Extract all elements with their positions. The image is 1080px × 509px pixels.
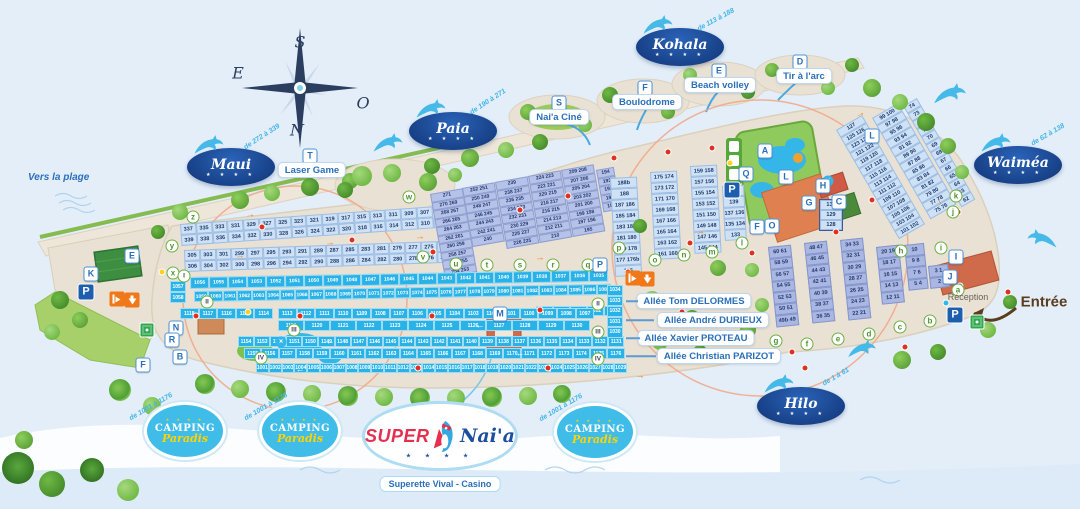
pitch-1048: 1048 xyxy=(342,274,361,286)
pitch-338: 338 xyxy=(197,233,214,245)
emergency-exit-icon xyxy=(110,292,125,307)
tree xyxy=(845,58,859,72)
pitch-1077: 1077 xyxy=(453,286,468,297)
pitch-1154: 1154 xyxy=(238,336,254,347)
pitch-1030: 1030 xyxy=(607,327,623,338)
tree xyxy=(419,173,437,191)
hydrant-dot xyxy=(687,240,694,247)
tree xyxy=(863,79,881,97)
pitch-1125: 1125 xyxy=(434,320,460,331)
tree xyxy=(231,380,249,398)
road-marker-r: r xyxy=(547,259,560,272)
pitch-block-mh-b3: 1119112011211122112311241125112611271128… xyxy=(278,320,590,331)
pitch-1134: 1134 xyxy=(560,336,576,347)
tree xyxy=(755,298,769,312)
pitch-281: 281 xyxy=(373,243,389,255)
super-naia-word1: SUPER xyxy=(365,426,430,447)
parking-icon: P xyxy=(724,182,741,199)
tree xyxy=(710,260,726,276)
pitch-332: 332 xyxy=(244,229,261,241)
pitch-1162: 1162 xyxy=(365,348,382,359)
pitch-1078: 1078 xyxy=(467,286,482,297)
pitch-1113: 1113 xyxy=(278,308,297,319)
pitch-1047: 1047 xyxy=(361,274,380,286)
facility-badge-M: M xyxy=(493,307,508,322)
road-direction-arrow: → xyxy=(325,237,336,249)
road-marker-m: m xyxy=(706,246,719,259)
road-marker-v: v xyxy=(417,251,430,264)
pitch-1032: 1032 xyxy=(607,306,623,317)
facility-label-tir-l-arc: Tir à l'arc xyxy=(776,68,832,84)
pitch-1021: 1021 xyxy=(512,363,525,373)
pitch-1052: 1052 xyxy=(266,275,285,287)
pitch-289: 289 xyxy=(310,245,326,257)
zone-oval-waimea: Waiméa★ ★ ★ ★ xyxy=(974,146,1062,184)
zone-oval-kohala: Kohala★ ★ ★ ★ xyxy=(636,28,724,66)
pitch-1141: 1141 xyxy=(447,336,463,347)
dolphin-icon xyxy=(932,83,967,111)
pitch-1029: 1029 xyxy=(614,363,627,373)
pitch-1002: 1002 xyxy=(269,363,282,373)
superette-label: Superette Vival - Casino xyxy=(380,476,501,492)
pitch-1054: 1054 xyxy=(228,276,247,288)
tree xyxy=(301,178,319,196)
pitch-1031: 1031 xyxy=(607,317,623,328)
zone-oval-hilo: Hilo★ ★ ★ ★ xyxy=(757,387,845,425)
alley-marker-I: I xyxy=(178,270,191,283)
pitch-1168: 1168 xyxy=(469,348,486,359)
pitch-1081: 1081 xyxy=(511,285,526,296)
pitch-1097: 1097 xyxy=(576,308,595,319)
pitch-297: 297 xyxy=(247,247,263,259)
alley-marker-III: III xyxy=(288,324,301,337)
alley-marker-IV: IV xyxy=(592,353,605,366)
hydrant-dot xyxy=(749,250,756,257)
pitch-1173: 1173 xyxy=(555,348,572,359)
pitch-1056: 1056 xyxy=(190,277,209,289)
pitch-1163: 1163 xyxy=(382,348,399,359)
alley-leader-4 xyxy=(626,355,656,357)
pitch-1151: 1151 xyxy=(286,336,302,347)
alley-marker-II: II xyxy=(201,296,214,309)
pitch-1072: 1072 xyxy=(381,287,396,298)
pitch-1160: 1160 xyxy=(330,348,347,359)
tree xyxy=(151,225,165,239)
hydrant-dot xyxy=(349,237,356,244)
pitch-1120: 1120 xyxy=(304,320,330,331)
pitch-1165: 1165 xyxy=(417,348,434,359)
hydrant-dot xyxy=(1005,289,1012,296)
pitch-1145: 1145 xyxy=(383,336,399,347)
tree xyxy=(51,291,69,309)
pitch-1003: 1003 xyxy=(282,363,295,373)
pitch-1036: 1036 xyxy=(570,270,589,282)
alley-label-3: Allée Xavier PROTEAU xyxy=(638,330,755,346)
pitch-293: 293 xyxy=(279,246,295,258)
road-marker-o: o xyxy=(649,254,662,267)
road-marker-h: h xyxy=(895,245,908,258)
pitch-1159: 1159 xyxy=(313,348,330,359)
pitch-1055: 1055 xyxy=(209,276,228,288)
compass-south: S xyxy=(295,33,306,52)
facility-label-beach-volley: Beach volley xyxy=(684,77,756,93)
pitch-1073: 1073 xyxy=(395,287,410,298)
pitch-1068: 1068 xyxy=(323,288,338,299)
light-dot xyxy=(159,269,166,276)
pitch-282: 282 xyxy=(374,254,390,266)
road-marker-i: i xyxy=(935,242,948,255)
pitch-1008: 1008 xyxy=(346,363,359,373)
hydrant-dot xyxy=(869,197,876,204)
pitch-334: 334 xyxy=(228,231,245,243)
pitch-1076: 1076 xyxy=(439,286,454,297)
pitch-1039: 1039 xyxy=(513,271,532,283)
road-direction-arrow: → xyxy=(235,250,246,262)
pitch-316: 316 xyxy=(370,221,387,233)
pitch-1044: 1044 xyxy=(418,273,437,285)
pitch-1114: 1114 xyxy=(254,308,273,319)
tree xyxy=(337,182,353,198)
pitch-1124: 1124 xyxy=(408,320,434,331)
tree xyxy=(955,165,969,179)
hydrant-dot xyxy=(545,365,552,372)
pitch-1062: 1062 xyxy=(237,290,252,301)
road-marker-n: n xyxy=(678,249,691,262)
road-marker-d: d xyxy=(863,328,876,341)
hydrant-dot xyxy=(193,313,200,320)
tree xyxy=(482,387,502,407)
pitch-326: 326 xyxy=(291,226,308,238)
hydrant-dot xyxy=(665,149,672,156)
pitch-1123: 1123 xyxy=(382,320,408,331)
pitch-1079: 1079 xyxy=(482,286,497,297)
pitch-1001: 1001 xyxy=(256,363,269,373)
pitch-1028: 1028 xyxy=(602,363,615,373)
pitch-336: 336 xyxy=(212,232,229,244)
hydrant-dot xyxy=(611,155,618,162)
road-direction-arrow: → xyxy=(635,371,645,382)
facility-badge-B: B xyxy=(173,350,188,365)
alley-label-4: Allée Christian PARIZOT xyxy=(657,348,781,364)
assembly-point-icon xyxy=(970,315,985,330)
tree xyxy=(338,386,358,406)
pitch-296: 296 xyxy=(263,258,279,270)
tree xyxy=(352,166,372,186)
pitch-1167: 1167 xyxy=(452,348,469,359)
lane-direction-arrow: ← xyxy=(356,308,365,318)
naia-mascot-icon xyxy=(432,417,458,455)
pitch-320: 320 xyxy=(338,223,355,235)
pitch-312: 312 xyxy=(401,218,418,230)
hydrant-dot xyxy=(833,229,840,236)
road-marker-l: l xyxy=(736,237,749,250)
road-marker-t: t xyxy=(481,259,494,272)
tree xyxy=(424,158,440,174)
camping-paradis-logo-2: ★ ★ ★ ★CAMPINGParadis xyxy=(259,402,341,460)
hydrant-dot xyxy=(415,365,422,372)
pitch-294: 294 xyxy=(279,257,295,269)
facility-badge-P: P xyxy=(593,258,608,273)
pitch-1063: 1063 xyxy=(252,290,267,301)
road-marker-e: e xyxy=(832,333,845,346)
pitch-1166: 1166 xyxy=(434,348,451,359)
pitch-1018: 1018 xyxy=(474,363,487,373)
zone-oval-paia: Paia★ ★ ★ ★ xyxy=(409,112,497,150)
pitch-1164: 1164 xyxy=(400,348,417,359)
road-marker-z: z xyxy=(187,211,200,224)
facility-label-boulodrome: Boulodrome xyxy=(612,94,682,110)
tree xyxy=(498,142,514,158)
pitch-290: 290 xyxy=(311,256,327,268)
pitch-1012: 1012 xyxy=(397,363,410,373)
tree xyxy=(80,458,104,482)
pitch-1086: 1086 xyxy=(582,284,597,295)
tree xyxy=(461,149,479,167)
pitch-298: 298 xyxy=(248,258,264,270)
facility-badge-I: I xyxy=(949,250,964,265)
pitch-1137: 1137 xyxy=(512,336,528,347)
hydrant-dot xyxy=(297,313,304,320)
facility-badge-L: L xyxy=(865,129,880,144)
pitch-1006: 1006 xyxy=(320,363,333,373)
pitch-1010: 1010 xyxy=(371,363,384,373)
crossed-marker: × xyxy=(276,337,287,348)
tree xyxy=(109,379,131,401)
tree xyxy=(633,219,647,233)
pitch-1148: 1148 xyxy=(335,336,351,347)
tree xyxy=(893,351,911,369)
facility-badge-C: C xyxy=(832,195,847,210)
pitch-block-mh-e: 10341033103210311030 xyxy=(607,285,623,338)
pitch-1067: 1067 xyxy=(309,289,324,300)
pitch-1042: 1042 xyxy=(456,272,475,284)
pitch-1129: 1129 xyxy=(538,320,564,331)
pitch-block-mh-f: 10571058 xyxy=(170,281,186,303)
hydrant-dot xyxy=(709,145,716,152)
alley-leader-2 xyxy=(626,319,654,321)
pitch-block-mh-d: 1001100210031004100510061007100810091010… xyxy=(256,363,627,373)
light-dot xyxy=(727,160,734,167)
pitch-1136: 1136 xyxy=(528,336,544,347)
alley-label-2: Allée André DURIEUX xyxy=(657,312,769,328)
to-beach-label: Vers la plage xyxy=(28,172,89,183)
pitch-1075: 1075 xyxy=(424,287,439,298)
pitch-block-mh-c1: 1154115311521151115011491148114711461145… xyxy=(238,336,624,347)
road-marker-y: y xyxy=(166,240,179,253)
pitch-284: 284 xyxy=(358,254,374,266)
compass-east: E xyxy=(232,64,244,83)
dolphin-icon xyxy=(847,340,877,365)
pitch-1133: 1133 xyxy=(576,336,592,347)
pitch-1153: 1153 xyxy=(254,336,270,347)
super-naia-logo: SUPER Nai'a xyxy=(362,401,518,471)
pitch-36-35: 36 35 xyxy=(811,309,835,323)
tree xyxy=(2,452,34,484)
super-naia-stars: ★ ★ ★ ★ xyxy=(406,453,475,460)
pitch-1127: 1127 xyxy=(486,320,512,331)
hydrant-dot xyxy=(429,313,436,320)
alley-leader-1 xyxy=(626,300,638,302)
facility-badge-K: K xyxy=(84,267,99,282)
facility-label-nai-a-cin-: Nai'a Ciné xyxy=(529,109,589,125)
pitch-1061: 1061 xyxy=(223,290,238,301)
pitch-1017: 1017 xyxy=(461,363,474,373)
pitch-1080: 1080 xyxy=(496,285,511,296)
tree xyxy=(940,138,956,154)
hydrant-dot xyxy=(902,344,909,351)
pitch-302: 302 xyxy=(216,259,232,271)
lane-direction-arrow: ← xyxy=(296,364,305,374)
pitch-1025: 1025 xyxy=(563,363,576,373)
entrance-label: Entrée xyxy=(1021,294,1068,311)
parking-icon: P xyxy=(78,284,95,301)
pitch-1058: 1058 xyxy=(170,292,186,303)
pitch-286: 286 xyxy=(342,255,358,267)
hydrant-dot xyxy=(517,207,524,214)
pitch-block-kohala-2: 175 174173 172171 170169 168167 166165 1… xyxy=(650,171,682,260)
hydrant-dot xyxy=(537,307,544,314)
lane-direction-arrow: ← xyxy=(476,320,485,330)
pitch-1144: 1144 xyxy=(399,336,415,347)
road-marker-w: w xyxy=(403,191,416,204)
pitch-1147: 1147 xyxy=(351,336,367,347)
tree xyxy=(231,191,249,209)
tree xyxy=(745,263,759,277)
pitch-1074: 1074 xyxy=(410,287,425,298)
pitch-1103: 1103 xyxy=(464,308,483,319)
pitch-291: 291 xyxy=(295,246,311,258)
pitch-5-4: 5 4 xyxy=(908,277,929,291)
pitch-1040: 1040 xyxy=(494,271,513,283)
road-marker-g: g xyxy=(770,335,783,348)
pitch-301: 301 xyxy=(216,248,232,260)
pitch-1176: 1176 xyxy=(607,348,624,359)
pitch-1138: 1138 xyxy=(496,336,512,347)
pitch-1019: 1019 xyxy=(486,363,499,373)
facility-badge-R: R xyxy=(165,333,180,348)
alley-marker-II: II xyxy=(592,298,605,311)
pitch-339: 339 xyxy=(181,234,198,246)
pitch-283: 283 xyxy=(358,243,374,255)
pitch-1046: 1046 xyxy=(380,273,399,285)
facility-badge-H: H xyxy=(816,179,831,194)
pitch-49b-49: 49b 49 xyxy=(775,313,799,327)
tree xyxy=(117,479,139,501)
tree xyxy=(303,385,321,403)
pitch-1065: 1065 xyxy=(280,289,295,300)
pitch-322: 322 xyxy=(323,224,340,236)
alley-label-1: Allée Tom DELORMES xyxy=(636,293,751,309)
parking-icon: P xyxy=(947,307,964,324)
pitch-1135: 1135 xyxy=(544,336,560,347)
camping-paradis-logo-1: ★ ★ ★ ★CAMPINGParadis xyxy=(144,402,226,460)
pitch-1107: 1107 xyxy=(390,308,409,319)
pitch-1140: 1140 xyxy=(463,336,479,347)
pitch-1022: 1022 xyxy=(525,363,538,373)
pitch-280: 280 xyxy=(390,253,406,265)
pitch-1045: 1045 xyxy=(399,273,418,285)
pitch-1146: 1146 xyxy=(367,336,383,347)
pitch-1157: 1157 xyxy=(279,348,296,359)
hydrant-dot xyxy=(565,193,572,200)
pitch-328: 328 xyxy=(275,227,292,239)
pitch-1015: 1015 xyxy=(435,363,448,373)
facility-badge-A: A xyxy=(758,144,773,159)
alley-marker-IV: IV xyxy=(255,352,268,365)
road-direction-arrow: → xyxy=(244,209,255,221)
compass-north: N xyxy=(290,121,304,140)
tree xyxy=(448,168,462,182)
pitch-1070: 1070 xyxy=(352,288,367,299)
pitch-1069: 1069 xyxy=(338,288,353,299)
pitch-1111: 1111 xyxy=(315,308,334,319)
road-marker-p: p xyxy=(613,242,626,255)
pitch-318: 318 xyxy=(354,222,371,234)
facility-badge-F: F xyxy=(136,358,151,373)
hydrant-dot xyxy=(789,349,796,356)
pitch-1131: 1131 xyxy=(608,336,624,347)
road-marker-f: f xyxy=(801,338,814,351)
pitch-288: 288 xyxy=(326,255,342,267)
pitch-1169: 1169 xyxy=(486,348,503,359)
pitch-1158: 1158 xyxy=(296,348,313,359)
pitch-1007: 1007 xyxy=(333,363,346,373)
alley-leader-3 xyxy=(626,337,640,339)
pitch-129: 129 xyxy=(820,210,842,220)
road-marker-s: s xyxy=(514,259,527,272)
camping-paradis-logo-3: ★ ★ ★ ★CAMPINGParadis xyxy=(554,403,636,461)
tree xyxy=(39,471,65,497)
campsite-map[interactable]: 3373353333313293273253233213193173153133… xyxy=(0,0,1080,509)
pitch-1051: 1051 xyxy=(285,275,304,287)
pitch-1084: 1084 xyxy=(554,284,569,295)
pitch-1128: 1128 xyxy=(512,320,538,331)
pitch-1026: 1026 xyxy=(576,363,589,373)
pitch-1121: 1121 xyxy=(330,320,356,331)
pitch-1057: 1057 xyxy=(170,281,186,292)
pitch-1011: 1011 xyxy=(384,363,397,373)
assembly-point-icon xyxy=(140,323,155,338)
pitch-1071: 1071 xyxy=(367,288,382,299)
tree xyxy=(532,134,548,150)
pitch-1066: 1066 xyxy=(295,289,310,300)
facility-badge-J: J xyxy=(943,270,958,285)
pitch-292: 292 xyxy=(295,257,311,269)
pitch-12-11: 12 11 xyxy=(881,290,905,304)
tree xyxy=(195,374,215,394)
facility-badge-Q: Q xyxy=(739,167,754,182)
pitch-1143: 1143 xyxy=(415,336,431,347)
pitch-1106: 1106 xyxy=(408,308,427,319)
pitch-1020: 1020 xyxy=(499,363,512,373)
facility-badge-G: G xyxy=(802,196,817,211)
pitch-1172: 1172 xyxy=(538,348,555,359)
pitch-1034: 1034 xyxy=(607,285,623,296)
tree xyxy=(892,94,908,110)
pitch-1024: 1024 xyxy=(550,363,563,373)
zone-oval-maui: Maui★ ★ ★ ★ xyxy=(187,148,275,186)
pitch-128: 128 xyxy=(820,220,842,230)
reception-label: Réception xyxy=(948,292,989,302)
tree xyxy=(383,164,401,182)
pitch-303: 303 xyxy=(200,249,216,261)
dolphin-icon xyxy=(1026,229,1058,255)
road-marker-k: k xyxy=(950,190,963,203)
pitch-1005: 1005 xyxy=(307,363,320,373)
hydrant-dot xyxy=(430,249,437,256)
compass-west: O xyxy=(356,94,369,113)
pitch-310: 310 xyxy=(417,217,434,229)
